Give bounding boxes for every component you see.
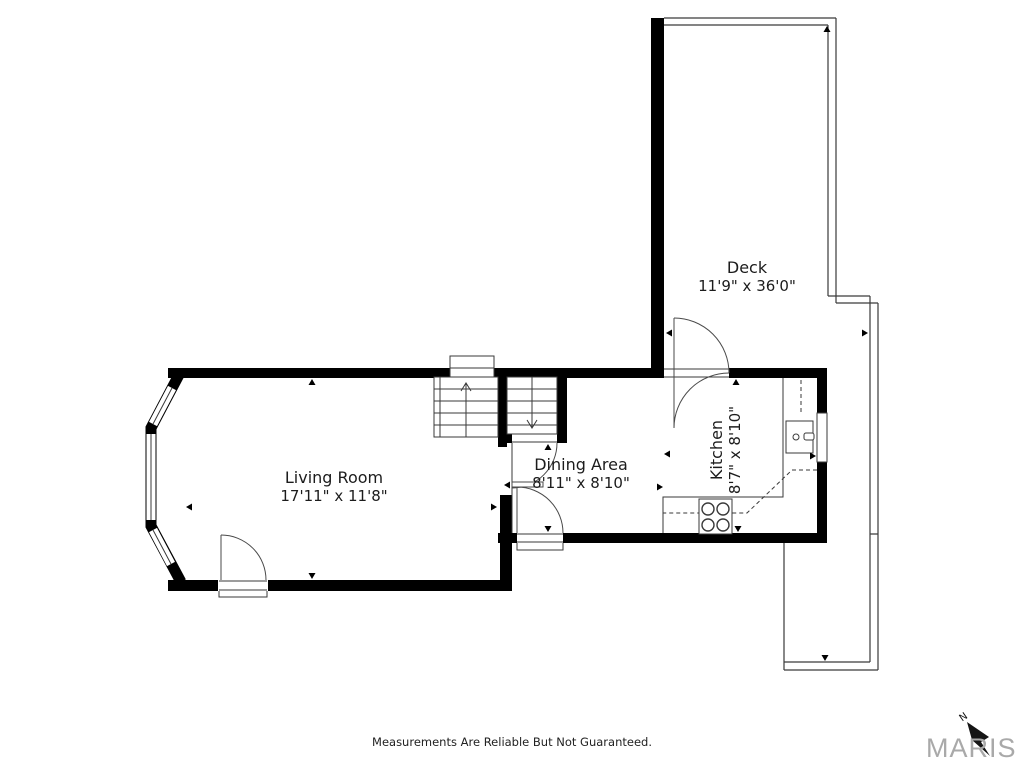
faucet-icon (804, 433, 814, 440)
disclaimer-text: Measurements Are Reliable But Not Guaran… (372, 735, 652, 749)
dimension-arrows (186, 26, 868, 661)
living-room-name: Living Room (280, 468, 387, 487)
front-door (221, 535, 266, 580)
kitchen-name: Kitchen (707, 406, 726, 494)
bay-window (151, 371, 181, 582)
dining-area-dimensions: 8'11" x 8'10" (532, 474, 630, 493)
dining-area-label: Dining Area 8'11" x 8'10" (532, 455, 630, 493)
kitchen-window (817, 413, 827, 462)
floor-plan-page: Living Room 17'11" x 11'8" Dining Area 8… (0, 0, 1024, 768)
kitchen-dimensions: 8'7" x 8'10" (726, 406, 745, 494)
kitchen-label: Kitchen 8'7" x 8'10" (707, 406, 745, 494)
maris-logo: MARIS (926, 733, 1017, 764)
dining-area-name: Dining Area (532, 455, 630, 474)
staircase-up (434, 377, 498, 437)
stove (699, 499, 732, 534)
living-room-label: Living Room 17'11" x 11'8" (280, 468, 387, 506)
dining-rear-door (517, 487, 563, 533)
deck-label: Deck 11'9" x 36'0" (698, 258, 796, 296)
staircase-down (507, 377, 557, 434)
deck-name: Deck (698, 258, 796, 277)
deck-railing (664, 18, 878, 670)
floor-plan-drawing (0, 0, 1024, 768)
deck-dimensions: 11'9" x 36'0" (698, 277, 796, 296)
kitchen-sink (786, 421, 814, 453)
living-room-dimensions: 17'11" x 11'8" (280, 487, 387, 506)
